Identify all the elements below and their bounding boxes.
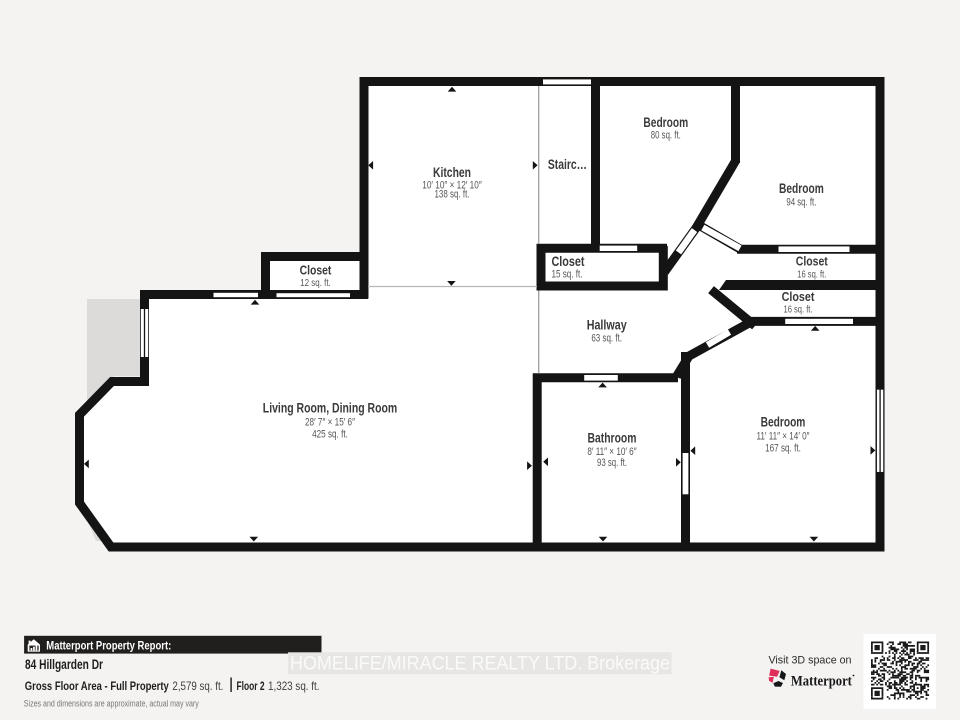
svg-text:Closet: Closet xyxy=(796,255,829,269)
svg-text:Floor 2: Floor 2 xyxy=(237,679,265,693)
svg-text:Bedroom: Bedroom xyxy=(643,115,688,130)
svg-text:Closet: Closet xyxy=(782,290,816,304)
svg-text:Closet: Closet xyxy=(552,254,585,269)
svg-text:Stairc…: Stairc… xyxy=(548,157,587,172)
svg-text:138 sq. ft.: 138 sq. ft. xyxy=(435,189,470,201)
svg-text:425 sq. ft.: 425 sq. ft. xyxy=(312,428,348,440)
svg-text:Gross Floor Area - Full Proper: Gross Floor Area - Full Property xyxy=(25,679,169,693)
svg-text:80 sq. ft.: 80 sq. ft. xyxy=(651,130,681,142)
svg-text:2,579 sq. ft.: 2,579 sq. ft. xyxy=(172,679,223,693)
svg-text:12 sq. ft.: 12 sq. ft. xyxy=(300,277,331,289)
svg-text:Kitchen: Kitchen xyxy=(433,165,471,180)
svg-text:16 sq. ft.: 16 sq. ft. xyxy=(797,268,826,280)
svg-text:Bedroom: Bedroom xyxy=(761,415,806,430)
svg-text:Closet: Closet xyxy=(300,263,332,277)
svg-text:Living Room, Dining Room: Living Room, Dining Room xyxy=(263,401,397,416)
svg-text:94 sq. ft.: 94 sq. ft. xyxy=(786,197,816,209)
svg-text:16 sq. ft.: 16 sq. ft. xyxy=(784,304,813,316)
svg-text:Visit 3D space on: Visit 3D space on xyxy=(769,655,852,667)
svg-text:84 Hillgarden Dr: 84 Hillgarden Dr xyxy=(25,657,104,672)
svg-text:1,323 sq. ft.: 1,323 sq. ft. xyxy=(268,679,320,693)
svg-text:93 sq. ft.: 93 sq. ft. xyxy=(597,457,627,469)
svg-text:Hallway: Hallway xyxy=(587,318,627,333)
svg-text:11′ 11″ × 14′ 0″: 11′ 11″ × 14′ 0″ xyxy=(757,430,810,442)
svg-text:28′ 7″ × 15′ 6″: 28′ 7″ × 15′ 6″ xyxy=(305,416,355,428)
svg-text:167 sq. ft.: 167 sq. ft. xyxy=(765,442,801,454)
svg-text:15 sq. ft.: 15 sq. ft. xyxy=(552,269,583,281)
svg-text:Matterport Property Report:: Matterport Property Report: xyxy=(46,641,171,653)
svg-text:Bedroom: Bedroom xyxy=(779,181,824,196)
svg-text:HOMELIFE/MIRACLE REALTY LTD. B: HOMELIFE/MIRACLE REALTY LTD. Brokerage xyxy=(290,654,670,675)
svg-text:Bathroom: Bathroom xyxy=(588,430,637,445)
svg-text:Matterport: Matterport xyxy=(791,673,852,689)
svg-text:63 sq. ft.: 63 sq. ft. xyxy=(591,333,622,345)
svg-text:Sizes and dimensions are appro: Sizes and dimensions are approximate, ac… xyxy=(24,698,199,708)
